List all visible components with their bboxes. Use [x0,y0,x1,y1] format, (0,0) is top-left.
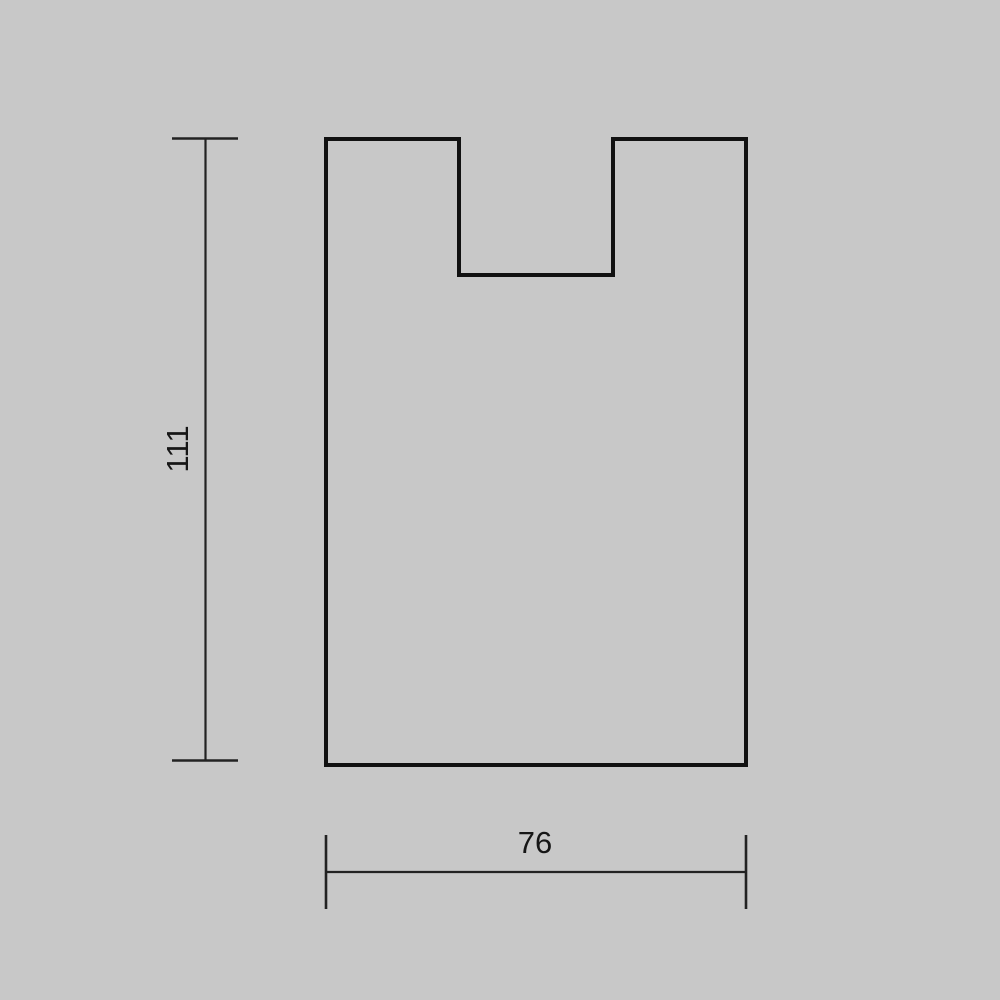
drawing-canvas: 111 76 [0,0,1000,1000]
vertical-dimension-label: 111 [160,425,195,472]
technical-drawing: 111 76 [0,0,1000,1000]
part-outline [326,139,746,765]
horizontal-dimension-label: 76 [518,825,552,860]
vertical-dimension: 111 [160,139,238,761]
horizontal-dimension: 76 [326,825,746,909]
